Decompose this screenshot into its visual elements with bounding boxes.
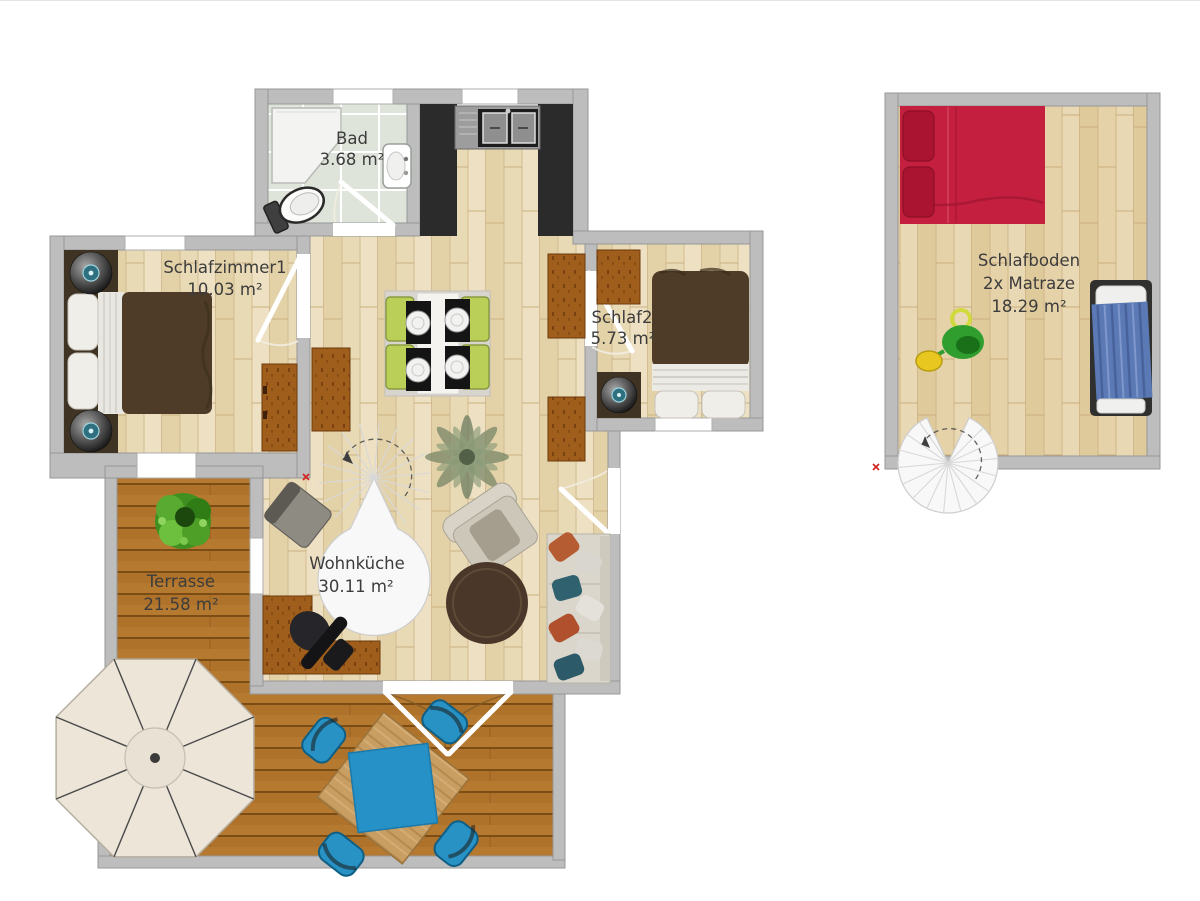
window-bedroom1-south <box>137 453 196 478</box>
window-livingroom-west <box>250 538 263 594</box>
dresser-livingroom-west <box>312 348 350 431</box>
terrace-tablecloth <box>348 743 437 832</box>
label-terrace-area: 21.58 m² <box>143 595 218 614</box>
coffee-table <box>446 562 528 644</box>
label-loft-name: Schlafboden <box>978 251 1080 270</box>
dining-set <box>385 291 490 396</box>
window-bathroom <box>333 89 393 104</box>
sofa <box>546 530 610 683</box>
kitchen-cabinet-right <box>538 104 573 236</box>
dresser-livingroom-se <box>548 397 585 461</box>
window-bedroom1-north <box>125 236 185 250</box>
nightstand-bedroom2 <box>597 372 641 418</box>
label-bedroom2-area: 5.73 m² <box>591 329 656 348</box>
bed1-lamp-top <box>70 252 112 294</box>
bed1-double <box>68 292 212 414</box>
kitchen-sink-counter <box>455 106 540 149</box>
label-loft-area: 18.29 m² <box>991 297 1066 316</box>
terrace-bush <box>155 493 211 549</box>
label-bedroom1-name: Schlafzimmer1 <box>163 258 286 277</box>
label-livingroom-area: 30.11 m² <box>318 577 393 596</box>
kitchen-floor <box>457 149 538 236</box>
bathroom-sink <box>383 144 411 188</box>
label-bad-name: Bad <box>336 129 368 148</box>
label-bad-area: 3.68 m² <box>320 150 385 169</box>
kitchen-cabinet-left <box>420 104 457 236</box>
window-bedroom2-south <box>655 418 712 431</box>
dresser-bedroom1 <box>262 364 297 451</box>
label-bedroom1-area: 10.03 m² <box>187 280 262 299</box>
loft-bed-blue <box>1090 280 1152 416</box>
parasol-umbrella <box>56 659 254 857</box>
window-kitchen <box>462 89 518 104</box>
dresser-bedroom2 <box>597 250 640 304</box>
floor-plan: Bad 3.68 m² Schlafzimmer1 10.03 m² Schla… <box>0 1 1200 901</box>
label-livingroom-name: Wohnküche <box>309 554 405 573</box>
label-bedroom2-name: Schlaf2 <box>591 308 652 327</box>
label-loft-subtitle: 2x Matraze <box>983 274 1075 293</box>
bed1-lamp-bottom <box>70 410 112 452</box>
label-terrace-name: Terrasse <box>146 572 215 591</box>
dresser-livingroom-ne <box>548 254 585 338</box>
loft-bed-red <box>900 106 1045 224</box>
floor-plan-page: Bad 3.68 m² Schlafzimmer1 10.03 m² Schla… <box>0 0 1200 901</box>
